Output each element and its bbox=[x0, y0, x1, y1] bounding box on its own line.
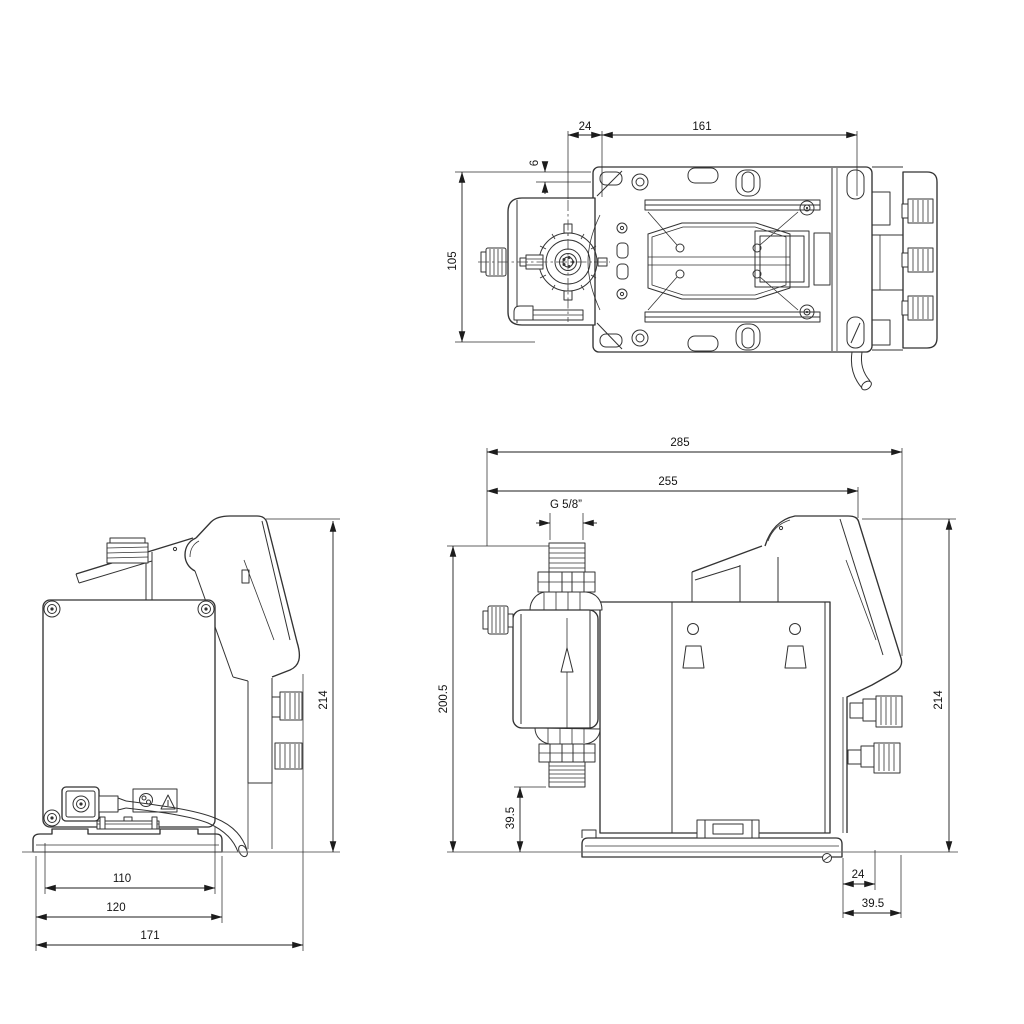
dim-top-105: 105 bbox=[447, 251, 459, 270]
dim-left-110: 110 bbox=[113, 873, 131, 885]
left-top-slope bbox=[76, 538, 193, 600]
right-dosing-head bbox=[483, 543, 602, 787]
right-head-knob bbox=[483, 606, 513, 634]
dim-right-285: 285 bbox=[670, 437, 689, 449]
left-thread-bung bbox=[107, 538, 148, 563]
dim-right-200-5: 200.5 bbox=[438, 685, 450, 714]
left-side-view: 214 110 120 171 bbox=[22, 516, 340, 951]
dim-left-120: 120 bbox=[106, 902, 125, 914]
dim-right-24: 24 bbox=[852, 869, 865, 881]
dim-left-214: 214 bbox=[318, 690, 330, 710]
dim-top-6: 6 bbox=[529, 160, 541, 166]
right-knob-lower bbox=[848, 743, 900, 773]
left-knob-upper bbox=[272, 692, 302, 720]
left-knob-lower bbox=[275, 743, 302, 769]
dim-right-39-5-knob: 39.5 bbox=[862, 898, 884, 910]
right-cable-clamp bbox=[697, 820, 759, 838]
right-side-view: 285 255 G 5/8” 200.5 39.5 214 24 39.5 bbox=[438, 437, 958, 918]
top-pump-head bbox=[478, 198, 610, 325]
right-motor-body bbox=[600, 602, 843, 833]
dim-right-214: 214 bbox=[933, 690, 945, 710]
dim-right-39-5-head: 39.5 bbox=[505, 807, 517, 829]
left-base bbox=[33, 829, 222, 852]
top-base-plate bbox=[593, 167, 872, 352]
dim-left-171: 171 bbox=[140, 930, 159, 942]
top-control-panel bbox=[872, 167, 937, 350]
dim-right-thread: G 5/8” bbox=[550, 499, 582, 511]
dim-top-24: 24 bbox=[579, 121, 592, 133]
right-knob-upper bbox=[850, 696, 902, 727]
dim-right-255: 255 bbox=[658, 476, 677, 488]
top-cable bbox=[851, 352, 873, 392]
top-view: 24 161 6 105 bbox=[447, 121, 937, 392]
pump-dimensional-drawing: 24 161 6 105 bbox=[0, 0, 1024, 1024]
dim-top-161: 161 bbox=[692, 121, 711, 133]
dimensional-drawing-page: 24 161 6 105 bbox=[0, 0, 1024, 1024]
